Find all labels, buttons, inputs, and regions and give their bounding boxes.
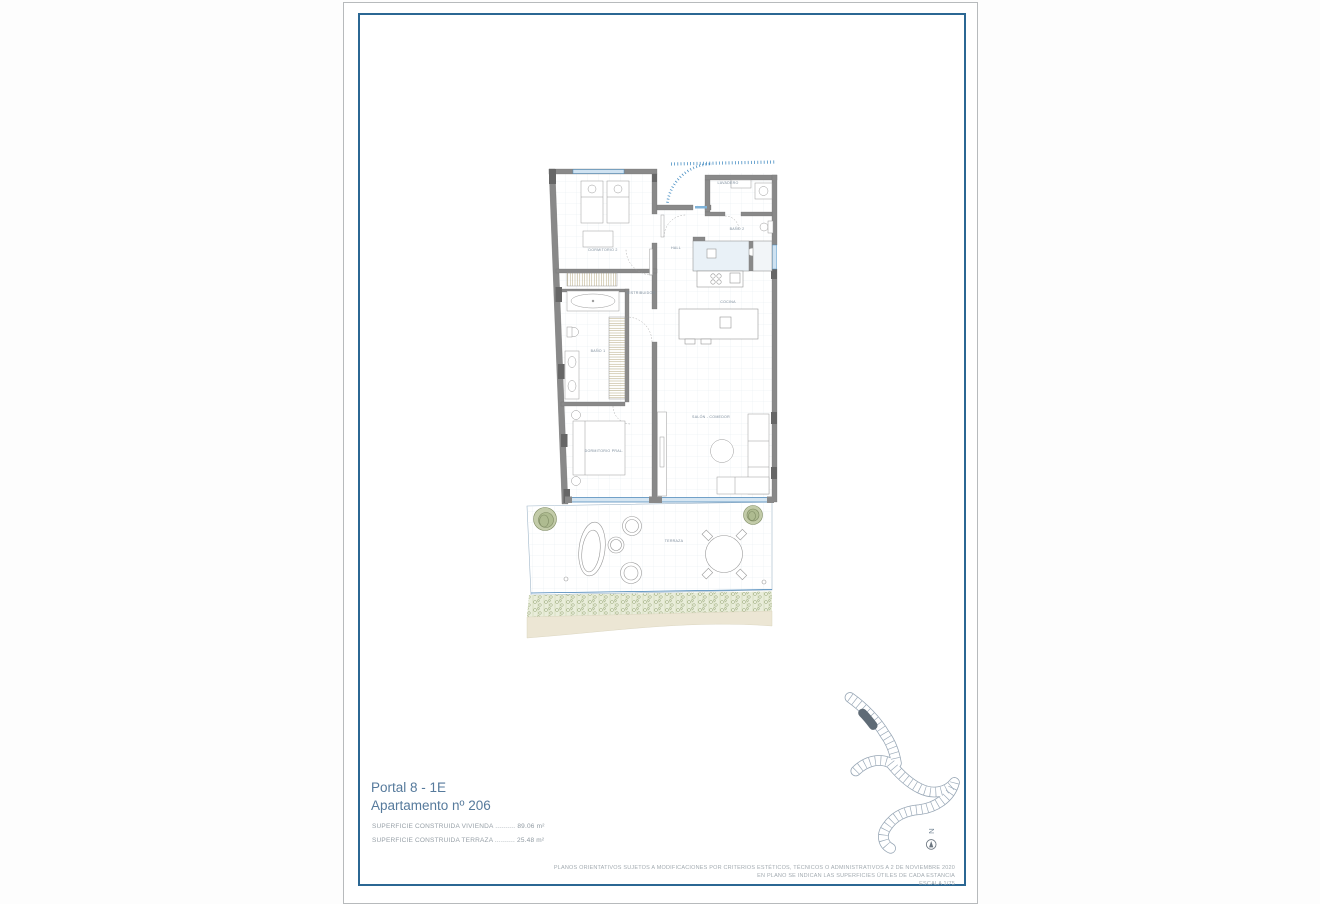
glass-mullion [565,497,572,504]
master-bedroom-furniture [572,411,626,486]
apartment-title: Apartamento nº 206 [371,797,491,815]
room-label-kitchen: COCINA [720,300,736,304]
round-table [711,440,734,463]
compass-needle [929,841,933,847]
surface-label: SUPERFICIE CONSTRUIDA VIVIENDA [372,823,493,830]
disclaimer-line-1: PLANOS ORIENTATIVOS SUJETOS A MODIFICACI… [554,865,955,873]
plan-sheet: DORMITORIO 2 HALL LAVADERO BAÑO 2 COCINA… [343,2,978,904]
room-label-terrace: TERRAZA [665,539,684,543]
surface-value: 25.48 m² [517,837,544,844]
surface-row-dwelling: SUPERFICIE CONSTRUIDA VIVIENDA .........… [372,820,545,834]
surface-label: SUPERFICIE CONSTRUIDA TERRAZA [372,837,493,844]
bedroom2-window [573,170,624,174]
surface-areas: SUPERFICIE CONSTRUIDA VIVIENDA .........… [372,820,545,847]
title-block: Portal 8 - 1E Apartamento nº 206 [371,779,491,814]
north-label: N [927,828,936,834]
hall-wardrobe [609,317,625,399]
sofa-chaise [717,477,769,494]
double-bed [573,421,625,475]
leader-dots: .......... [495,837,515,844]
building-footprint [850,698,954,849]
room-label-bedroom2: DORMITORIO 2 [588,248,617,252]
disclaimer-line-2: EN PLANO SE INDICAN LAS SUPERFICIES ÚTIL… [554,873,955,881]
room-label-hall: HALL [671,246,681,250]
room-label-bath2: BAÑO 2 [730,226,745,231]
room-label-laundry: LAVADERO [717,181,738,185]
disclaimer-block: PLANOS ORIENTATIVOS SUJETOS A MODIFICACI… [554,865,955,889]
room-label-distributor: DISTRIBUIDOR [627,291,656,295]
kitchen-window [773,245,777,269]
north-compass: N [926,828,936,849]
room-label-bath1: BAÑO 1 [591,348,606,353]
leader-dots: .......... [495,823,515,830]
glass-mullion [649,497,662,504]
bedroom2-wardrobe [567,273,617,286]
entry-door-threshold [695,206,707,209]
surface-value: 89.06 m² [517,823,544,830]
kitchen-island [679,309,758,339]
dining-table [706,536,743,573]
site-key-plan: N [821,679,966,861]
garden-strip [527,590,772,639]
portal-title: Portal 8 - 1E [371,779,491,797]
floorplan-drawing: DORMITORIO 2 HALL LAVADERO BAÑO 2 COCINA… [521,159,803,661]
terrace-glass-front [568,498,772,503]
room-label-master-bedroom: DORMITORIO PRAL. [585,449,624,453]
toilet [760,223,768,231]
glass-mullion [767,497,774,504]
room-label-living-room: SALÓN - COMEDOR [692,414,730,419]
disclaimer-line-scale: ESCALA 1/75 [554,881,955,889]
surface-row-terrace: SUPERFICIE CONSTRUIDA TERRAZA ..........… [372,834,545,848]
